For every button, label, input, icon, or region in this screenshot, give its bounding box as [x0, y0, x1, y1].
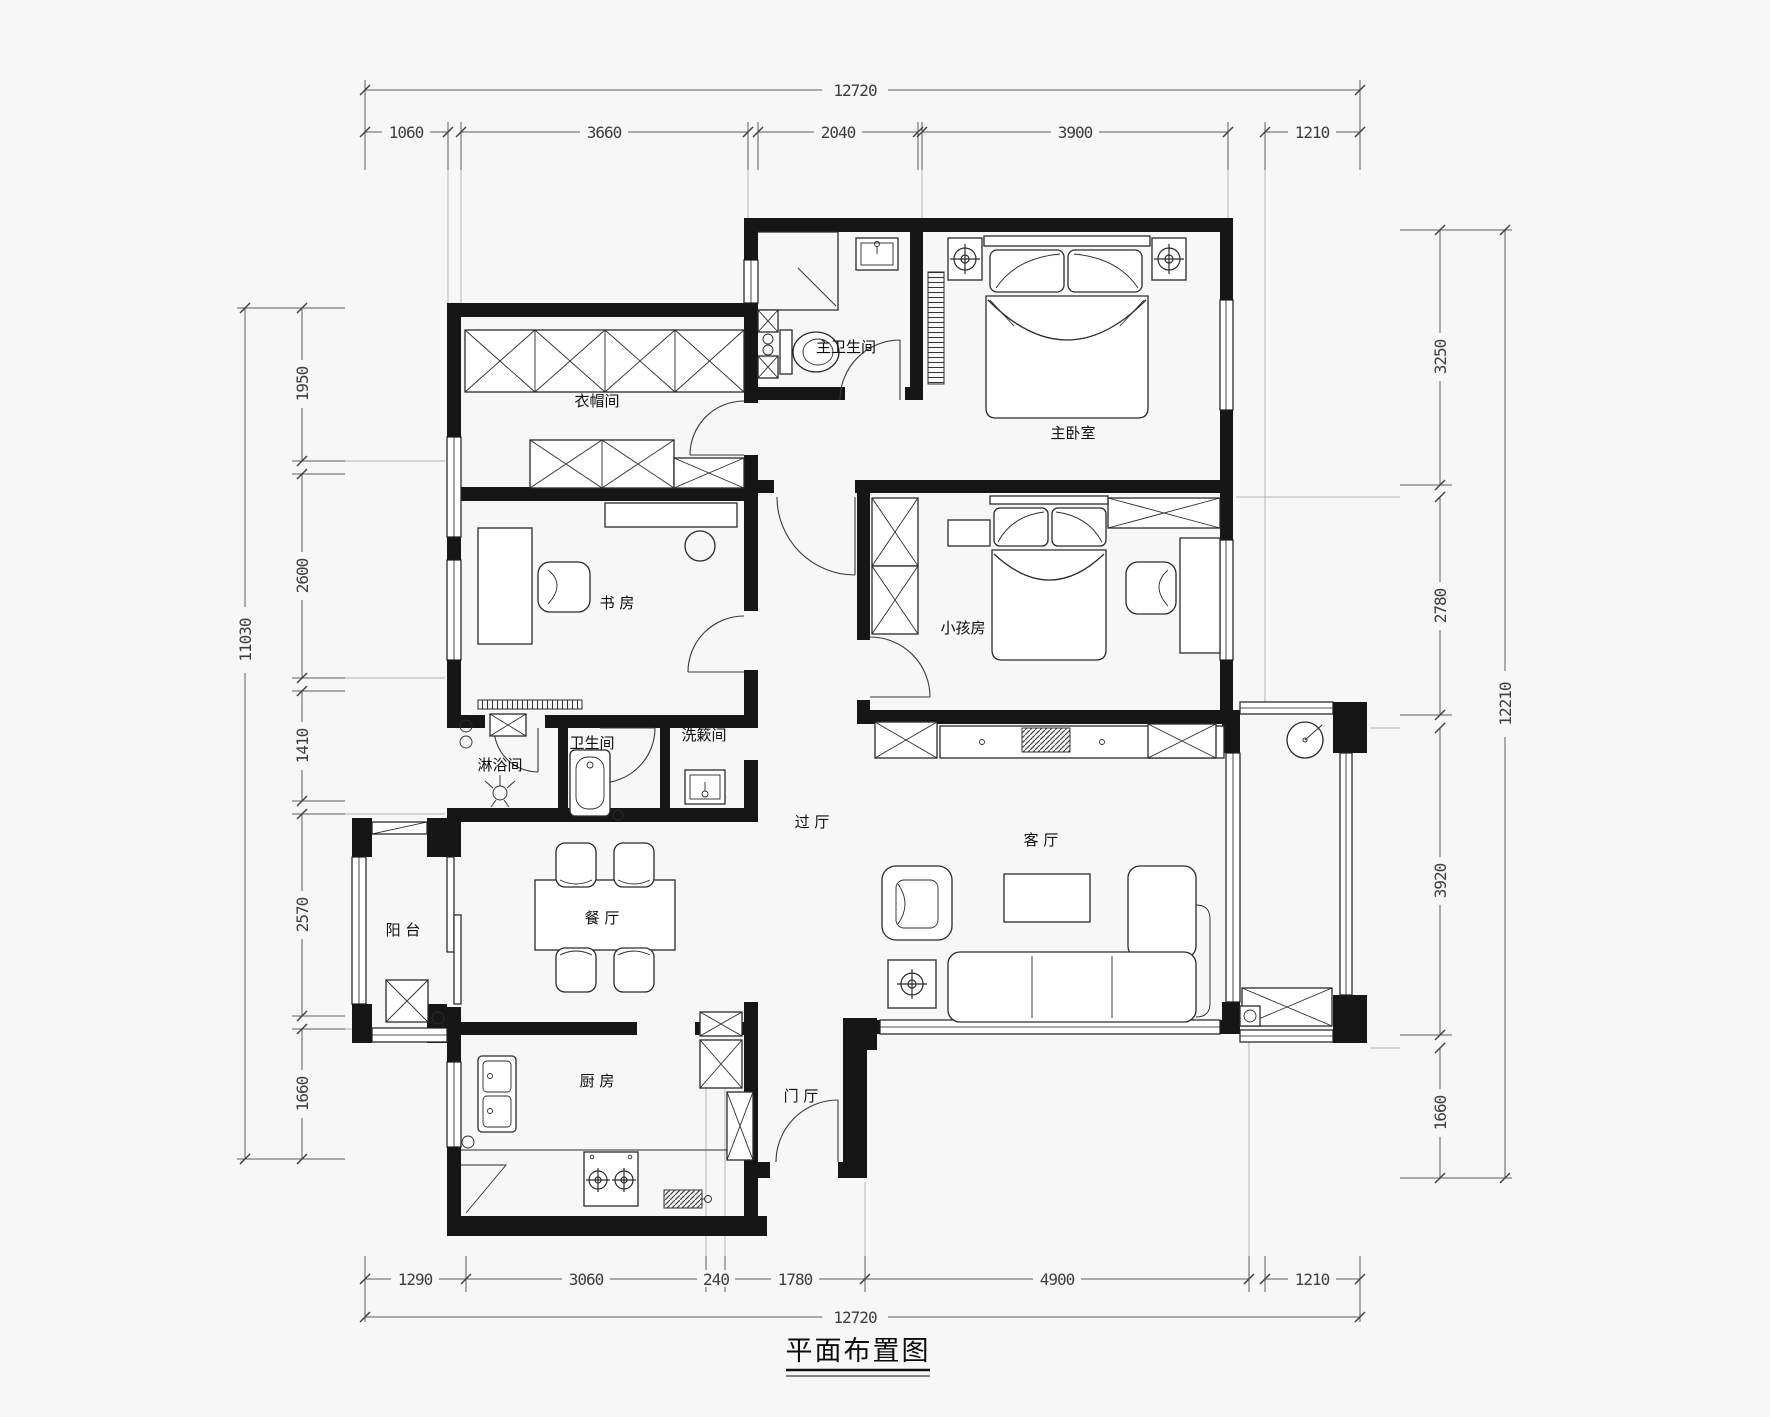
dim-left-total: 11030 — [236, 618, 255, 662]
dimension-chain-top: 12720 1060 3660 2040 3900 1210 — [360, 80, 1365, 170]
room-label-master-bathroom: 主卫生间 — [816, 338, 876, 356]
dim-top-seg-1: 3660 — [587, 123, 622, 142]
dim-right-seg-3: 1660 — [1431, 1095, 1450, 1130]
kids-nightstand — [948, 520, 990, 546]
nightstand-left — [948, 238, 982, 280]
dim-right-total: 12210 — [1496, 682, 1515, 726]
single-bed-icon — [990, 496, 1108, 660]
dimension-chain-right: 3250 2780 3920 1660 12210 — [1400, 225, 1515, 1183]
double-bed-icon — [984, 236, 1150, 418]
room-label-dining-room: 餐 厅 — [585, 909, 620, 927]
dim-right-seg-0: 3250 — [1431, 339, 1450, 374]
dim-bottom-seg-5: 1210 — [1295, 1270, 1330, 1289]
dim-top-seg-0: 1060 — [389, 123, 424, 142]
radiator-icon — [478, 700, 582, 709]
dim-bottom-seg-4: 4900 — [1040, 1270, 1075, 1289]
window-kids-room-right — [1220, 540, 1233, 660]
title-text: 平面布置图 — [786, 1336, 931, 1367]
round-table-icon — [1287, 722, 1323, 758]
living-room-furniture — [875, 722, 1224, 1022]
cabinet-icon — [490, 714, 526, 736]
room-label-washroom: 洗簌间 — [681, 726, 726, 744]
kids-room-furniture — [872, 496, 1220, 660]
dim-left-seg-4: 1660 — [293, 1076, 312, 1111]
side-table-lamp-icon — [888, 960, 936, 1008]
dim-left-seg-1: 2600 — [293, 558, 312, 593]
room-label-bathroom: 卫生间 — [569, 734, 614, 752]
dim-right-seg-1: 2780 — [1431, 588, 1450, 623]
room-label-living-room: 客 厅 — [1024, 831, 1059, 849]
tv-cabinet-left-icon — [875, 722, 937, 758]
dining-chair — [556, 948, 596, 992]
master-bathroom-fixtures — [758, 232, 898, 378]
right-balcony-items — [1240, 722, 1332, 1026]
window-cloakroom-left — [447, 437, 461, 537]
kitchen-corner-door — [461, 1136, 506, 1213]
room-label-kitchen: 厨 房 — [580, 1072, 615, 1090]
window-study-left — [447, 560, 461, 660]
room-label-kids-room: 小孩房 — [940, 619, 985, 637]
window-living-right — [1226, 753, 1240, 1002]
kids-chair-icon — [1126, 562, 1176, 614]
room-label-hallway: 过 厅 — [795, 813, 830, 831]
stove-icon — [584, 1152, 638, 1206]
dim-top-seg-2: 2040 — [821, 123, 856, 142]
drain-box — [1240, 1006, 1260, 1026]
coffee-table-icon — [1004, 874, 1090, 922]
dim-left-seg-3: 2570 — [293, 897, 312, 932]
rail-right-balcony-bottom — [1240, 1030, 1333, 1042]
dim-bottom-seg-0: 1290 — [398, 1270, 433, 1289]
armchair-icon — [882, 866, 952, 940]
room-label-entrance: 门 厅 — [784, 1087, 819, 1105]
shower-light-icon — [485, 775, 515, 807]
drawing-title: 平面布置图 — [786, 1336, 931, 1376]
dim-left-seg-2: 1410 — [293, 728, 312, 763]
closet-top-icon — [1108, 498, 1220, 528]
washing-machine-icon — [386, 980, 428, 1022]
wall-cabinet-icons — [758, 310, 778, 378]
tv-cabinet-right-icon — [1148, 724, 1216, 758]
dim-bottom-seg-1: 3060 — [569, 1270, 604, 1289]
washroom-sink-icon — [685, 770, 725, 804]
balcony-rail-bottom — [372, 1028, 447, 1042]
dimension-chain-left: 1950 2600 1410 2570 1660 11030 — [236, 303, 345, 1164]
dining-chair — [614, 843, 654, 887]
window-balcony-left — [352, 857, 366, 1004]
door-shower-enclosure — [798, 268, 836, 306]
desk-icon — [478, 528, 532, 644]
small-appliance-icon — [664, 1190, 712, 1208]
window-master-bedroom-right — [1220, 300, 1233, 410]
master-bedroom-furniture — [928, 236, 1186, 418]
window-right-balcony — [1340, 753, 1352, 995]
shower-enclosure — [758, 232, 838, 310]
tv-icon — [1022, 728, 1070, 752]
door-cloakroom — [690, 401, 744, 455]
wardrobe-icon — [872, 498, 918, 634]
dim-top-seg-3: 3900 — [1058, 123, 1093, 142]
dim-right-seg-2: 3920 — [1431, 863, 1450, 898]
door-master-bedroom — [777, 497, 855, 575]
rail-right-balcony-top — [1240, 702, 1333, 714]
door-kids-room — [870, 637, 930, 697]
dining-chair — [614, 948, 654, 992]
dim-top-seg-4: 1210 — [1295, 123, 1330, 142]
door-entrance — [776, 1100, 838, 1162]
dimension-chain-bottom: 1290 3060 240 1780 4900 1210 12720 — [360, 1256, 1365, 1327]
balcony-rail-top — [372, 822, 427, 834]
dim-top-total: 12720 — [833, 81, 877, 100]
dim-bottom-seg-2: 240 — [703, 1270, 729, 1289]
dim-bottom-total: 12720 — [833, 1308, 877, 1327]
bathtub-icon — [570, 750, 610, 816]
dining-chair — [556, 843, 596, 887]
sliding-door-dining-balcony — [447, 857, 461, 1004]
window-kitchen-left — [447, 1062, 461, 1147]
radiator-icon — [928, 272, 944, 384]
room-label-balcony: 阳 台 — [386, 921, 421, 939]
nightstand-right — [1152, 238, 1186, 280]
sink-icon — [856, 238, 898, 270]
room-label-shower-room: 淋浴间 — [477, 756, 522, 774]
desk-chair-icon — [538, 562, 590, 612]
dim-bottom-seg-3: 1780 — [778, 1270, 813, 1289]
bookshelf-icon — [605, 503, 737, 527]
dim-left-seg-0: 1950 — [293, 366, 312, 401]
window-corridor-small — [744, 260, 758, 303]
room-label-cloakroom: 衣帽间 — [574, 392, 619, 410]
kids-desk-icon — [1180, 538, 1220, 653]
room-label-study: 书 房 — [600, 594, 635, 612]
room-label-master-bedroom: 主卧室 — [1050, 424, 1095, 442]
door-study — [688, 616, 744, 672]
floor-plan-page: 12720 1060 3660 2040 3900 1210 — [0, 0, 1770, 1417]
kitchen-sink-icon — [478, 1056, 516, 1132]
stool-icon — [685, 531, 715, 561]
floor-plan-drawing: 12720 1060 3660 2040 3900 1210 — [0, 0, 1770, 1417]
